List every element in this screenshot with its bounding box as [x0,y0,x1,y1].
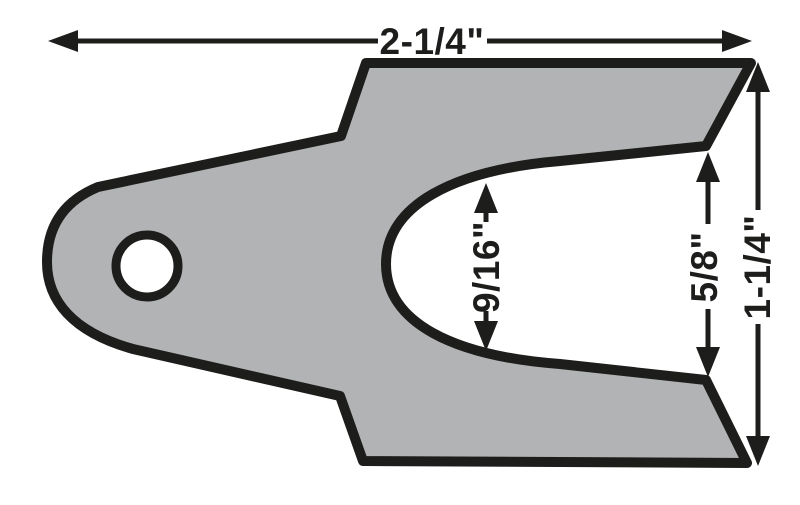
shim-part [47,63,751,463]
technical-drawing: 2-1/4" 9/16" 5/8" 1-1/4" [0,0,800,505]
dimension-slot-width: 9/16" [466,183,507,351]
dimension-fork-opening: 5/8" [684,152,725,377]
overall-height-label: 1-1/4" [737,215,778,320]
arrowhead-down-icon [696,347,720,377]
mounting-hole [116,235,178,297]
dimension-overall-height: 1-1/4" [737,62,778,466]
arrowhead-left-icon [48,30,78,52]
arrowhead-up-icon [696,152,720,182]
shim-drawing-canvas: 2-1/4" 9/16" 5/8" 1-1/4" [0,0,800,505]
overall-width-label: 2-1/4" [380,21,485,62]
arrowhead-up-icon [474,183,498,213]
slot-width-label: 9/16" [466,221,507,313]
fork-opening-label: 5/8" [684,232,725,303]
arrowhead-right-icon [722,30,752,52]
dimension-overall-width: 2-1/4" [48,21,752,62]
